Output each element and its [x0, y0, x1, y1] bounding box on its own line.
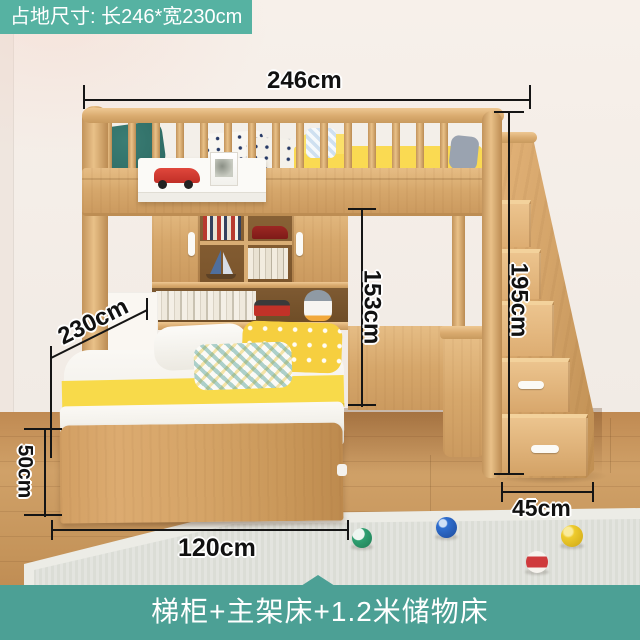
- drawer-handle: [531, 445, 559, 453]
- owl-plush: [304, 290, 332, 321]
- dimension-tick: [24, 428, 62, 430]
- door-handle: [296, 232, 303, 256]
- loft-guard-rail: [82, 108, 504, 123]
- caption-bar: 梯柜+主架床+1.2米储物床: [0, 585, 640, 640]
- open-shelf-row: [152, 288, 348, 322]
- dimension-tick: [347, 520, 349, 540]
- toy-car-wheel: [158, 180, 167, 189]
- bed-caster: [337, 464, 347, 476]
- dimension-line-120: [52, 529, 348, 531]
- stair-handrail-post: [482, 111, 502, 478]
- dimension-tick: [348, 404, 376, 406]
- drawer-handle: [518, 381, 544, 389]
- green-ball: [352, 528, 372, 548]
- books: [248, 248, 288, 279]
- red-stripe-ball: [526, 551, 548, 573]
- bed-footboard: [59, 423, 343, 524]
- dimension-tick: [348, 208, 376, 210]
- sailboat-sail: [223, 252, 233, 274]
- toy-car: [254, 300, 290, 316]
- sailboat-hull: [206, 274, 236, 279]
- dimension-tick: [529, 85, 531, 109]
- toy-car-wheel: [184, 180, 193, 189]
- dimension-tick: [83, 85, 85, 109]
- dimension-tick: [494, 111, 524, 113]
- dimension-tick: [501, 482, 503, 502]
- dimension-tick: [592, 482, 594, 502]
- footprint-size-badge: 占地尺寸: 长246*宽230cm: [0, 0, 252, 34]
- dimension-label-under-loft-height: 153cm: [359, 270, 383, 345]
- gray-pillow: [448, 135, 479, 172]
- check-pillow: [193, 341, 293, 390]
- blue-ball: [436, 517, 457, 538]
- books: [156, 291, 256, 320]
- dimension-extension-line: [50, 346, 52, 458]
- shelf-lip: [138, 192, 266, 202]
- dimension-label-total-width: 246cm: [267, 69, 342, 93]
- yellow-ball: [561, 525, 583, 547]
- dimension-tick: [494, 473, 524, 475]
- dimension-line-246: [84, 99, 530, 101]
- dimension-label-bed-width: 120cm: [178, 536, 256, 561]
- side-panel: [443, 339, 485, 457]
- dimension-label-stair-depth: 45cm: [512, 497, 571, 520]
- floor-plank-seam: [610, 418, 611, 473]
- dimension-tick: [24, 514, 62, 516]
- product-dimension-image: 246cm 230cm 153cm 195cm 50cm 120cm 45cm …: [0, 0, 640, 640]
- dimension-line-45: [502, 491, 594, 493]
- sailboat-sail: [210, 250, 221, 274]
- door-handle: [188, 232, 195, 256]
- dimension-label-overall-height: 195cm: [506, 263, 530, 338]
- bookshelf-unit: [152, 204, 348, 330]
- dimension-label-bed-height: 50cm: [14, 445, 35, 499]
- hanging-shelf: [138, 158, 266, 202]
- dimension-tick: [51, 520, 53, 540]
- dimension-line-50: [44, 429, 46, 517]
- stair-step-1: [500, 200, 531, 247]
- side-rail: [440, 326, 487, 339]
- picture-frame: [210, 152, 238, 186]
- cubby-shelf: [200, 241, 292, 245]
- frame-art: [215, 159, 233, 177]
- toy-car: [252, 226, 288, 239]
